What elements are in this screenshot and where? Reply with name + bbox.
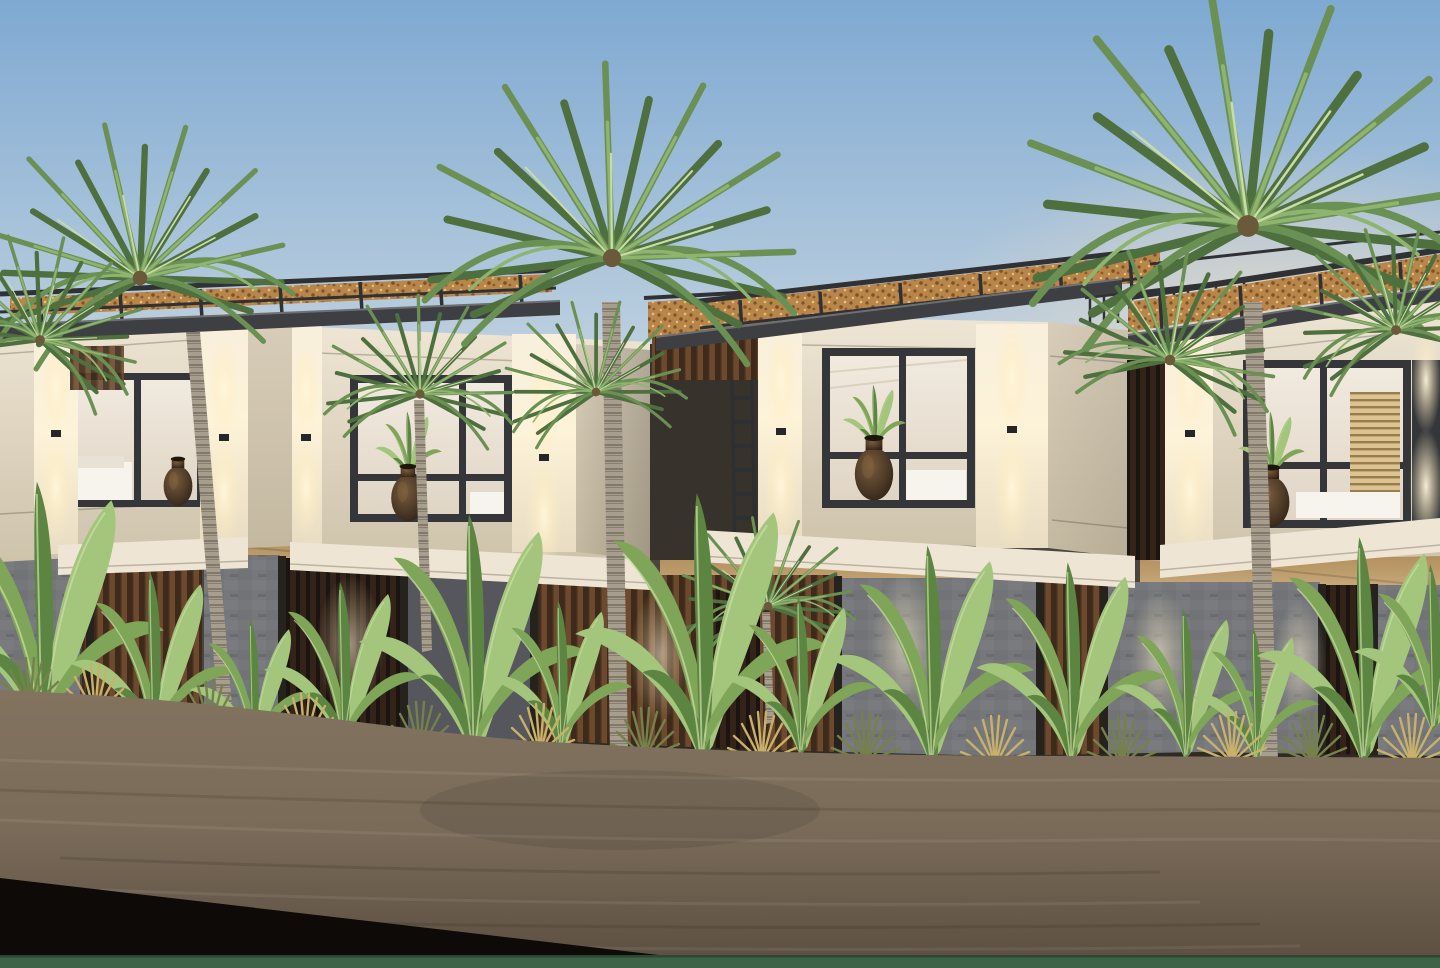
interior-bed [470, 492, 504, 514]
villa-a-side-return [248, 320, 292, 548]
interior-blinds [1350, 392, 1400, 492]
villa-c-dark-slat-bay [1127, 360, 1165, 560]
interior-bed [1296, 492, 1400, 518]
villa-b [248, 320, 764, 590]
architectural-rendering: Dusk architectural rendering of a row of… [0, 0, 1440, 968]
interior-bed [906, 470, 966, 500]
villa-render-canvas: Dusk architectural rendering of a row of… [0, 0, 1440, 968]
hedge-strip-shade [0, 955, 1440, 958]
